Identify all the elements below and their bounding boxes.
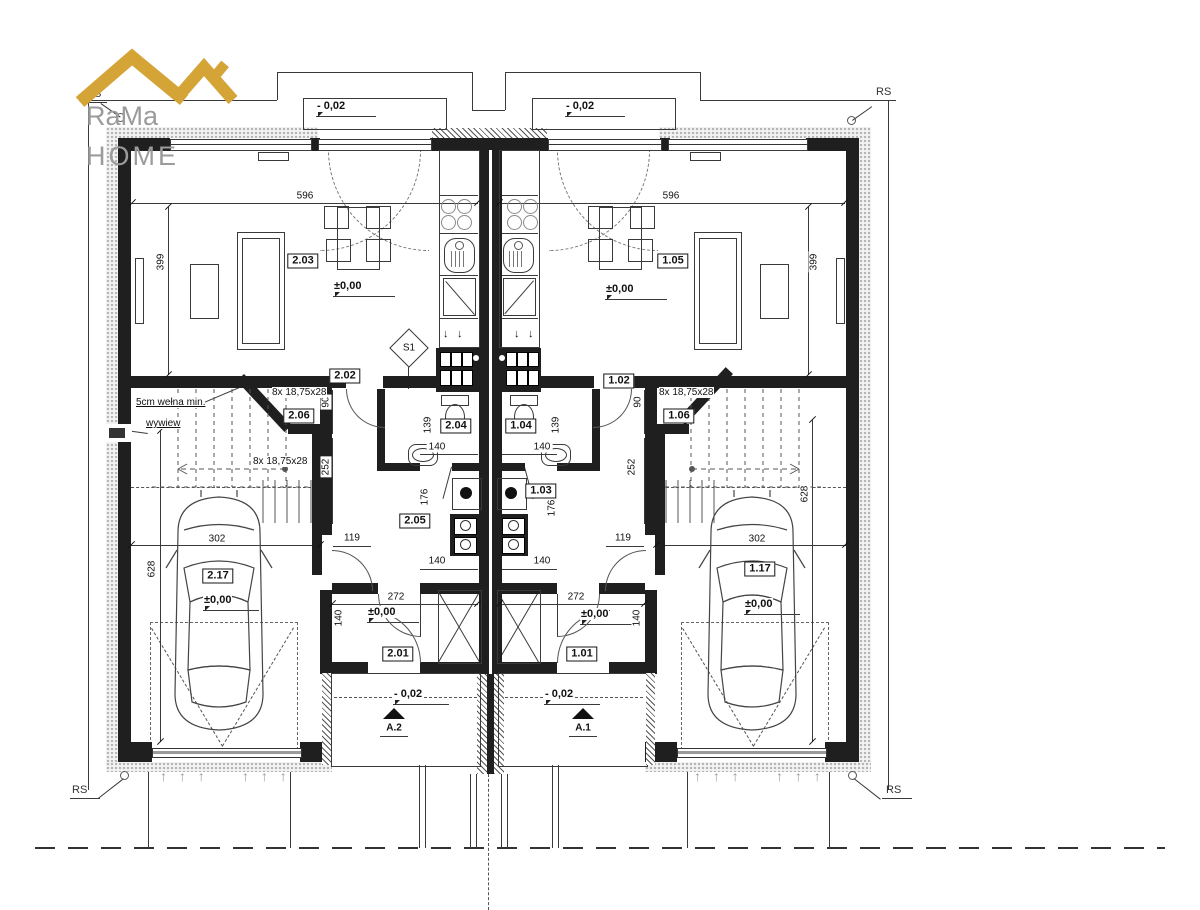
rs-point xyxy=(847,116,856,125)
room-label-utility-left: 2.05 xyxy=(399,514,430,529)
flue xyxy=(528,352,539,367)
washer-drum-circle xyxy=(508,520,519,531)
boiler-dot xyxy=(460,487,472,499)
cooktop-burner xyxy=(523,199,538,214)
walkway-edge xyxy=(425,765,426,848)
rs-marker: RS xyxy=(72,784,87,796)
dim-line xyxy=(168,207,169,375)
dim-garage-depth: 628 xyxy=(147,559,158,580)
dim-stair-depth: 252 xyxy=(627,457,638,478)
walkway-edge xyxy=(507,774,508,848)
flue xyxy=(517,370,528,386)
dim-line xyxy=(332,390,333,434)
walkway-edge xyxy=(476,774,477,848)
site-outline xyxy=(88,100,89,790)
level-entry: - 0,02 xyxy=(544,688,574,700)
entry-marker-label: A.2 xyxy=(384,723,404,734)
entry-marker-label: A.1 xyxy=(573,723,593,734)
dim-utility-door: 140 xyxy=(427,556,448,567)
wall-party-core xyxy=(487,674,494,774)
insulation-strip xyxy=(106,762,332,772)
wall-exterior-left xyxy=(118,442,131,752)
rs-point xyxy=(120,771,129,780)
insulation-strip xyxy=(659,127,871,138)
level-ground: ±0,00 xyxy=(744,598,773,610)
dim-line xyxy=(420,569,478,570)
dim-garage-width: 302 xyxy=(747,534,768,545)
window xyxy=(170,139,312,151)
site-outline xyxy=(277,72,472,73)
porch-side-hatch xyxy=(646,673,655,765)
flue xyxy=(451,352,462,367)
terrace-hatch xyxy=(432,128,547,138)
insulation-strip xyxy=(859,127,871,763)
level-ground: ±0,00 xyxy=(605,283,634,295)
cooktop-burner xyxy=(457,215,472,230)
wall-bathroom xyxy=(497,463,525,471)
flue xyxy=(517,352,528,367)
dim-stair-depth: 252 xyxy=(321,457,332,478)
level-ground: ±0,00 xyxy=(203,594,232,606)
walkway-edge xyxy=(552,765,553,848)
boiler-dot xyxy=(505,487,517,499)
wall-internal xyxy=(541,376,594,388)
sink-tap xyxy=(455,241,464,250)
flue xyxy=(462,370,473,386)
dishwasher xyxy=(503,278,536,316)
dim-stair-width: 90 xyxy=(633,394,644,409)
cooktop-burner xyxy=(507,215,522,230)
flue xyxy=(506,352,517,367)
level-entry: - 0,02 xyxy=(393,688,423,700)
garage-door-swing xyxy=(332,550,373,591)
wall-garage-front xyxy=(825,742,859,762)
party-axis-dashed xyxy=(488,774,489,910)
rs-marker: RS xyxy=(886,784,901,796)
chair xyxy=(324,206,349,229)
floor-plan-canvas: ↑ ↑ ↑ ↑ ↑ ↑ ↑ ↑ ↑ ↑ ↑ ↑ ↓ ↓ xyxy=(0,0,1200,910)
garage-direction-arrows: ↑ ↑ ↑ xyxy=(694,768,743,784)
note-stair-run: 8x 18,75x28 xyxy=(253,456,308,467)
site-outline xyxy=(505,72,506,110)
garage-door xyxy=(152,748,302,758)
garage-direction-arrows: ↑ ↑ ↑ xyxy=(776,768,825,784)
sink-drainer xyxy=(451,251,467,267)
driveway-edge xyxy=(687,771,688,848)
chair xyxy=(630,206,655,229)
room-label-hall-right: 1.01 xyxy=(566,647,597,662)
dim-utility-depth: 176 xyxy=(420,487,431,508)
site-outline xyxy=(888,100,889,790)
cooktop-burner xyxy=(441,199,456,214)
sink-tap xyxy=(514,241,523,250)
driveway-edge xyxy=(829,771,830,848)
room-label-living-left: 2.03 xyxy=(287,254,318,269)
flue xyxy=(528,370,539,386)
wall-internal xyxy=(383,376,436,388)
site-outline xyxy=(700,100,888,101)
level-ground: ±0,00 xyxy=(580,608,609,620)
site-outline xyxy=(277,72,278,100)
dim-door-clear: 119 xyxy=(613,533,633,544)
door-swing-arc xyxy=(593,389,632,428)
chair xyxy=(366,239,391,262)
dim-bathroom-width: 140 xyxy=(427,442,448,453)
room-label-stairs-right: 1.06 xyxy=(663,409,694,424)
wall-vent xyxy=(109,428,125,438)
dim-door-clear: 119 xyxy=(342,533,362,544)
note-vent: wywiew xyxy=(146,418,180,429)
washer-drum-circle xyxy=(508,539,519,550)
cooktop-burner xyxy=(507,199,522,214)
site-outline xyxy=(472,72,473,110)
logo-wordmark-line1: RaMa xyxy=(86,102,158,130)
chair xyxy=(326,239,351,262)
level-ground: ±0,00 xyxy=(333,280,362,292)
chair xyxy=(628,239,653,262)
insulation-strip xyxy=(106,127,118,763)
dim-line xyxy=(332,438,333,524)
dishwasher xyxy=(443,278,476,316)
level-entry: - 0,02 xyxy=(316,100,346,112)
rs-leader xyxy=(853,778,880,800)
dim-line xyxy=(499,203,845,204)
flue xyxy=(506,370,517,386)
coffee-table xyxy=(760,264,789,319)
dim-utility-door: 140 xyxy=(532,556,553,567)
entry-marker-triangle xyxy=(572,708,594,719)
rs-underline xyxy=(870,100,896,101)
flue xyxy=(451,370,462,386)
coffee-table xyxy=(190,264,219,319)
vent-arrow: ↓ xyxy=(443,328,449,340)
cooktop-burner xyxy=(441,215,456,230)
radiator xyxy=(690,152,721,161)
walkway-edge xyxy=(470,774,471,848)
car-top-view xyxy=(163,488,275,738)
terrace-door xyxy=(548,139,662,151)
walkway-edge xyxy=(558,765,559,848)
rs-underline xyxy=(70,798,100,799)
chair xyxy=(588,239,613,262)
rs-leader xyxy=(98,778,124,798)
wall-bathroom xyxy=(452,463,480,471)
room-label-living-right: 1.05 xyxy=(657,254,688,269)
window xyxy=(668,139,808,151)
radiator xyxy=(836,258,845,324)
flue-round xyxy=(499,355,505,361)
dim-garage-depth: 628 xyxy=(800,484,811,505)
level-entry: - 0,02 xyxy=(565,100,595,112)
site-outline xyxy=(700,72,701,100)
vent-arrow: ↓ xyxy=(514,328,520,340)
dim-utility-depth: 176 xyxy=(547,498,558,519)
dim-garage-width: 302 xyxy=(207,534,228,545)
flue xyxy=(440,370,451,386)
sink-drainer xyxy=(509,251,525,267)
wall-porch xyxy=(609,662,646,673)
logo-wordmark-line2: HOME xyxy=(86,142,179,170)
room-label-garage-left: 2.17 xyxy=(202,569,233,584)
dim-line xyxy=(808,207,809,375)
chair xyxy=(366,206,391,229)
s1-label: S1 xyxy=(403,343,415,354)
radiator xyxy=(135,258,144,324)
room-label-corridor-right: 1.02 xyxy=(603,374,634,389)
dim-hall-door: 140 xyxy=(632,608,643,629)
dim-living-depth: 399 xyxy=(156,252,167,273)
wall-top xyxy=(806,138,859,151)
note-stair-run: 8x 18,75x28 xyxy=(659,387,714,398)
level-ground: ±0,00 xyxy=(367,606,396,618)
room-label-bathroom-right: 1.04 xyxy=(505,419,536,434)
walkway-edge xyxy=(501,774,502,848)
room-label-hall-left: 2.01 xyxy=(382,647,413,662)
note-insulation: 5cm wełna min. xyxy=(136,397,205,408)
dim-living-width: 596 xyxy=(295,191,316,202)
property-line xyxy=(35,847,1165,849)
dim-bathroom-depth: 139 xyxy=(423,415,434,436)
rs-underline xyxy=(882,798,912,799)
rs-marker: RS xyxy=(876,86,891,98)
site-outline xyxy=(505,72,700,73)
wall-porch xyxy=(331,662,368,673)
dim-line xyxy=(132,203,478,204)
dim-line xyxy=(333,546,371,547)
dim-living-width: 596 xyxy=(661,191,682,202)
dim-hall-door: 140 xyxy=(334,608,345,629)
sofa-inner xyxy=(699,238,737,344)
garage-door xyxy=(677,748,827,758)
vent-arrow: ↓ xyxy=(457,328,463,340)
door-leaf xyxy=(442,467,452,499)
site-outline xyxy=(472,110,505,111)
wall-garage-front xyxy=(118,742,152,762)
dim-line xyxy=(606,546,644,547)
flue-round xyxy=(473,355,479,361)
note-stair-run: 8x 18,75x28 xyxy=(272,387,327,398)
dim-entry-width: 272 xyxy=(566,592,587,603)
dim-entry-width: 272 xyxy=(386,592,407,603)
radiator xyxy=(258,152,289,161)
washer-drum-circle xyxy=(460,520,471,531)
hall-closet xyxy=(438,590,482,664)
room-label-stairs-left: 2.06 xyxy=(283,409,314,424)
sofa-inner xyxy=(242,238,280,344)
wall-exterior-left xyxy=(118,138,131,424)
room-label-garage-right: 1.17 xyxy=(744,562,775,577)
terrace-door xyxy=(318,139,432,151)
dim-bathroom-width: 140 xyxy=(532,442,553,453)
garage-direction-arrows: ↑ ↑ ↑ xyxy=(242,768,291,784)
room-label-bathroom-left: 2.04 xyxy=(440,419,471,434)
flue xyxy=(462,352,473,367)
dim-line xyxy=(499,569,557,570)
wall-exterior-right xyxy=(846,138,859,752)
garage-direction-arrows: ↑ ↑ ↑ xyxy=(160,768,209,784)
cooktop-burner xyxy=(523,215,538,230)
walkway-edge xyxy=(419,765,420,848)
flue xyxy=(440,352,451,367)
vent-arrow: ↓ xyxy=(528,328,534,340)
garage-door-swing xyxy=(605,550,646,591)
rs-point xyxy=(848,771,857,780)
dim-bathroom-depth: 139 xyxy=(551,415,562,436)
cooktop-burner xyxy=(457,199,472,214)
chair xyxy=(588,206,613,229)
wall-garage-hall xyxy=(645,590,657,674)
driveway-edge xyxy=(148,771,149,848)
porch-side-hatch xyxy=(322,673,331,765)
hall-closet xyxy=(497,590,541,664)
room-label-corridor-left: 2.02 xyxy=(329,369,360,384)
insulation-strip xyxy=(645,762,871,772)
washer-drum-circle xyxy=(460,539,471,550)
dim-living-depth: 399 xyxy=(809,252,820,273)
entry-marker-triangle xyxy=(383,708,405,719)
door-swing-arc xyxy=(346,389,385,428)
room-label-utility-right: 1.03 xyxy=(525,484,556,499)
terrace-slab xyxy=(532,98,676,130)
